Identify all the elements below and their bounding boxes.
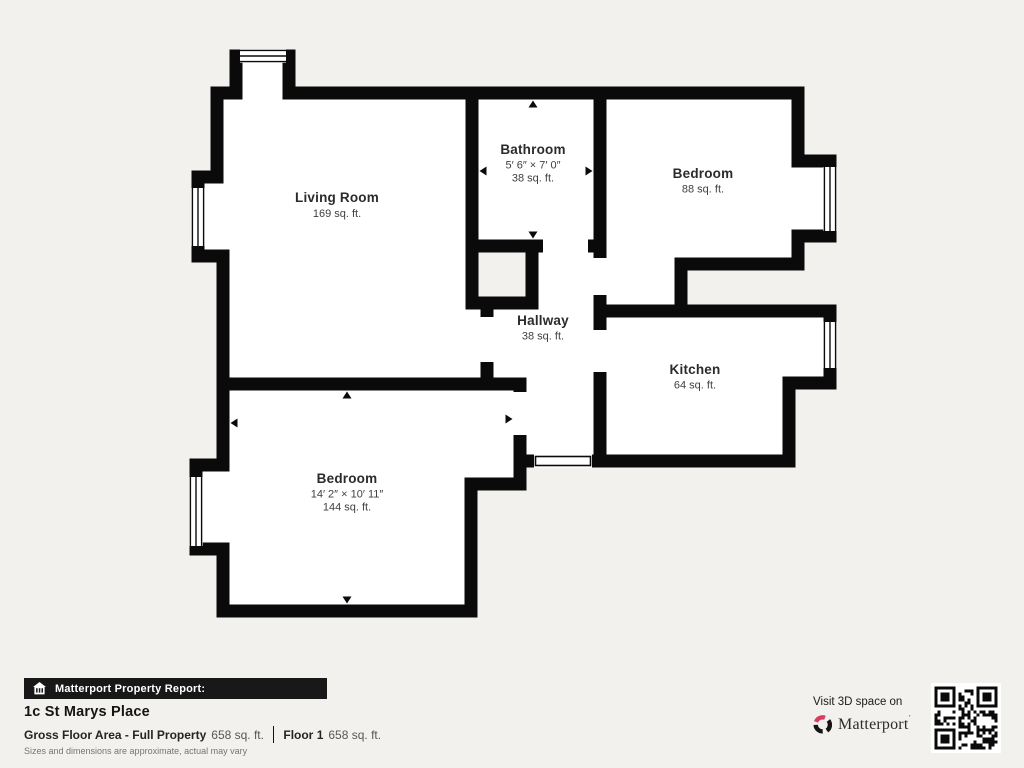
entry-door-leaf bbox=[536, 457, 591, 466]
bathroom-area: 38 sq. ft. bbox=[512, 173, 554, 185]
bedroom-top-area: 88 sq. ft. bbox=[682, 184, 724, 196]
visit-3d-text: Visit 3D space on bbox=[813, 696, 911, 708]
kitchen-label: Kitchen bbox=[670, 362, 721, 377]
gross-floor-area-label: Gross Floor Area - Full Property bbox=[24, 728, 206, 742]
door-bedroom-bottom bbox=[513, 392, 527, 435]
bathroom-dimensions: 5′ 6″ × 7′ 0″ bbox=[505, 160, 560, 172]
matterport-wordmark: Matterport’ bbox=[838, 714, 911, 734]
void-shaft bbox=[472, 246, 532, 303]
bathroom-label: Bathroom bbox=[500, 142, 565, 157]
bedroom-top-label: Bedroom bbox=[673, 166, 734, 181]
report-banner: Matterport Property Report: bbox=[24, 678, 327, 699]
bedroom-bottom-area: 144 sq. ft. bbox=[323, 502, 371, 514]
bedroom-bottom-label: Bedroom bbox=[317, 471, 378, 486]
room-living-room bbox=[198, 56, 487, 384]
living-room-area: 169 sq. ft. bbox=[313, 208, 361, 220]
bedroom-bottom-dimensions: 14′ 2″ × 10′ 11″ bbox=[311, 489, 384, 501]
promo-section: Visit 3D space on Matterport’ bbox=[813, 683, 1001, 753]
window-living-bay bbox=[191, 188, 205, 246]
property-address: 1c St Marys Place bbox=[24, 704, 150, 720]
living-room-label: Living Room bbox=[295, 190, 379, 205]
matterport-logo-icon bbox=[813, 715, 832, 734]
floor-label: Floor 1 bbox=[283, 728, 323, 742]
door-bedroom-top bbox=[593, 258, 607, 295]
disclaimer-text: Sizes and dimensions are approximate, ac… bbox=[24, 746, 247, 756]
door-living-room bbox=[480, 317, 494, 362]
floor-area-info: Gross Floor Area - Full Property 658 sq.… bbox=[24, 726, 381, 743]
gross-floor-area-value: 658 sq. ft. bbox=[211, 728, 264, 742]
door-bathroom bbox=[543, 239, 588, 253]
floor-plan: Living Room 169 sq. ft. Bathroom 5′ 6″ ×… bbox=[0, 0, 1024, 665]
report-banner-text: Matterport Property Report: bbox=[55, 683, 205, 695]
kitchen-area: 64 sq. ft. bbox=[674, 380, 716, 392]
window-bedroom-bottom-bay bbox=[189, 477, 203, 546]
divider bbox=[273, 726, 274, 743]
matterport-logo: Matterport’ bbox=[813, 714, 911, 734]
house-icon bbox=[33, 682, 46, 695]
hallway-area: 38 sq. ft. bbox=[522, 331, 564, 343]
hallway-label: Hallway bbox=[517, 313, 569, 328]
window-kitchen bbox=[823, 322, 837, 368]
door-kitchen bbox=[593, 330, 607, 372]
window-bedroom-top bbox=[823, 167, 837, 231]
room-bedroom-top bbox=[600, 93, 830, 311]
floor-plan-walls bbox=[196, 56, 830, 611]
window-chimney bbox=[240, 49, 286, 63]
floor-value: 658 sq. ft. bbox=[328, 728, 381, 742]
qr-code bbox=[931, 683, 1001, 753]
